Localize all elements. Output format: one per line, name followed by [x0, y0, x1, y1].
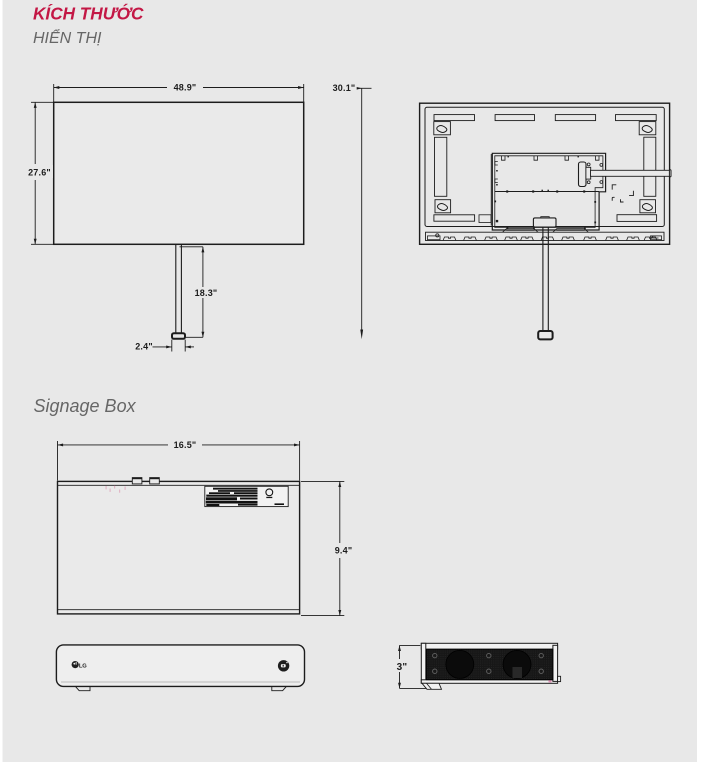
- svg-text:3": 3": [397, 662, 408, 673]
- svg-text:KÍCH THƯỚC: KÍCH THƯỚC: [33, 4, 144, 24]
- svg-text:2.4": 2.4": [135, 342, 153, 352]
- svg-text:27.6": 27.6": [28, 168, 51, 178]
- svg-text:HIỂN THỊ: HIỂN THỊ: [33, 28, 102, 47]
- svg-text:16.5": 16.5": [174, 440, 197, 450]
- svg-text:18.3": 18.3": [195, 288, 218, 298]
- svg-text:48.9": 48.9": [174, 83, 197, 93]
- svg-text:9.4": 9.4": [335, 546, 353, 556]
- svg-text:Signage Box: Signage Box: [34, 396, 137, 416]
- svg-text:LG: LG: [79, 663, 87, 669]
- svg-text:30.1": 30.1": [333, 83, 356, 93]
